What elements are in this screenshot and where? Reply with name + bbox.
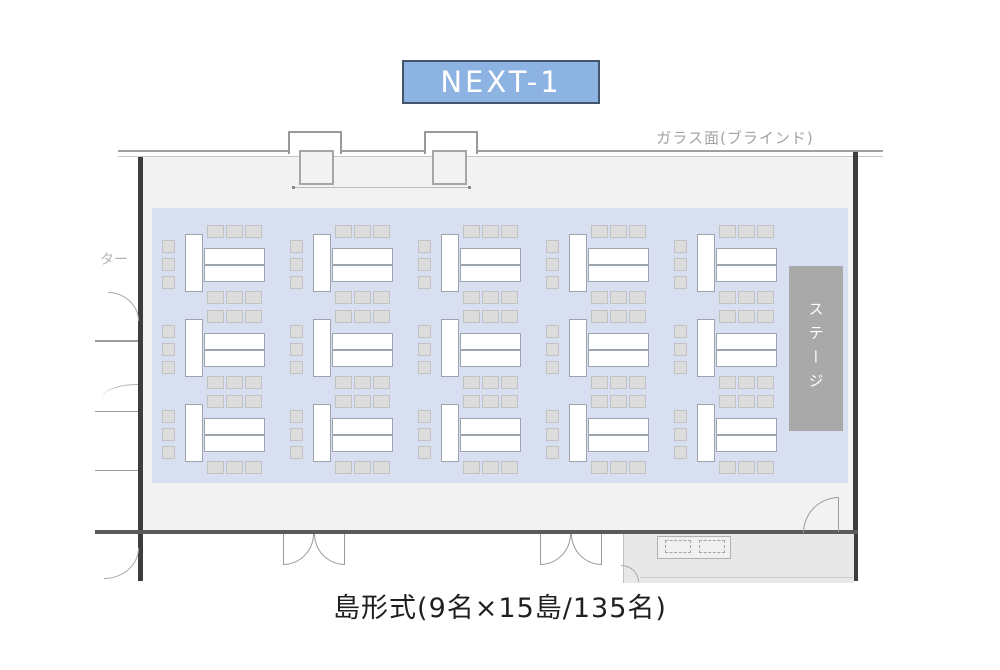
chair (207, 376, 224, 389)
sink-unit (657, 536, 731, 559)
chair (501, 291, 518, 304)
seating-island (674, 395, 777, 474)
chair (463, 461, 480, 474)
chair (418, 258, 431, 271)
table-horizontal (204, 248, 265, 265)
chair (482, 461, 499, 474)
chair (162, 325, 175, 338)
chair (373, 376, 390, 389)
pillar-base-1 (299, 150, 334, 185)
pillar-dot-left (292, 186, 295, 189)
chair (354, 376, 371, 389)
table-horizontal (332, 265, 393, 282)
chair (162, 446, 175, 459)
wall-top (118, 150, 883, 152)
chair (463, 291, 480, 304)
chair (501, 225, 518, 238)
table-horizontal (588, 248, 649, 265)
chair (546, 258, 559, 271)
sink-icon (665, 540, 691, 553)
chair (207, 310, 224, 323)
chair (482, 291, 499, 304)
chair (373, 225, 390, 238)
table-vertical (569, 404, 587, 462)
door-1-right-swing-arc (314, 534, 345, 565)
table-vertical (185, 404, 203, 462)
table-horizontal (588, 265, 649, 282)
chair (226, 376, 243, 389)
seating-island (546, 225, 649, 304)
chair (335, 376, 352, 389)
annex-line (640, 577, 853, 578)
chair (373, 310, 390, 323)
chair (463, 225, 480, 238)
table-horizontal (332, 435, 393, 452)
wall-right (853, 152, 858, 581)
chair (226, 461, 243, 474)
table-vertical (185, 319, 203, 377)
seating-island (674, 310, 777, 389)
table-vertical (697, 234, 715, 292)
chair (674, 361, 687, 374)
chair (546, 410, 559, 423)
chair (207, 225, 224, 238)
chair (245, 376, 262, 389)
chair (335, 291, 352, 304)
chair (546, 240, 559, 253)
table-horizontal (588, 435, 649, 452)
chair (354, 395, 371, 408)
chair (418, 361, 431, 374)
chair (373, 461, 390, 474)
chair (738, 310, 755, 323)
table-horizontal (332, 418, 393, 435)
table-vertical (441, 404, 459, 462)
chair (546, 276, 559, 289)
table-vertical (441, 234, 459, 292)
chair (674, 276, 687, 289)
chair (290, 240, 303, 253)
door-3-leaf (838, 497, 839, 532)
chair (418, 240, 431, 253)
table-horizontal (716, 418, 777, 435)
chair (610, 395, 627, 408)
chair (418, 325, 431, 338)
chair (335, 225, 352, 238)
chair (290, 276, 303, 289)
chair (245, 461, 262, 474)
table-vertical (569, 234, 587, 292)
chair (335, 395, 352, 408)
table-vertical (697, 319, 715, 377)
chair (629, 225, 646, 238)
chair (290, 343, 303, 356)
chair (610, 461, 627, 474)
table-horizontal (204, 435, 265, 452)
table-vertical (697, 404, 715, 462)
chair (226, 291, 243, 304)
chair (162, 240, 175, 253)
table-horizontal (588, 418, 649, 435)
seating-island (290, 395, 393, 474)
left-edge-label: ター (100, 249, 128, 269)
table-vertical (313, 319, 331, 377)
chair (591, 225, 608, 238)
chair (162, 410, 175, 423)
table-horizontal (460, 350, 521, 367)
chair (674, 258, 687, 271)
table-horizontal (716, 333, 777, 350)
chair (335, 461, 352, 474)
chair (738, 461, 755, 474)
chair (418, 276, 431, 289)
chair (757, 291, 774, 304)
chair (463, 310, 480, 323)
chair (162, 276, 175, 289)
chair (207, 395, 224, 408)
chair (162, 258, 175, 271)
wall-top-inner-line (118, 156, 883, 157)
chair (418, 446, 431, 459)
chair (674, 343, 687, 356)
door-2-left-swing-arc (540, 534, 571, 565)
chair (674, 410, 687, 423)
chair (418, 410, 431, 423)
door-1-left-swing-arc (283, 534, 314, 565)
wall-tick-2 (95, 411, 138, 412)
seating-island (418, 310, 521, 389)
chair (757, 461, 774, 474)
seating-island (162, 395, 265, 474)
table-horizontal (716, 435, 777, 452)
chair (546, 428, 559, 441)
chair (226, 225, 243, 238)
chair (591, 310, 608, 323)
chair (738, 395, 755, 408)
chair (162, 343, 175, 356)
chair (418, 428, 431, 441)
chair (418, 343, 431, 356)
chair (610, 376, 627, 389)
chair (335, 310, 352, 323)
chair (546, 361, 559, 374)
seating-island (290, 310, 393, 389)
seating-island (674, 225, 777, 304)
chair (610, 225, 627, 238)
left-door-swing-arc-3 (104, 548, 139, 579)
chair (591, 395, 608, 408)
chair (290, 410, 303, 423)
table-horizontal (460, 333, 521, 350)
chair (719, 225, 736, 238)
door-2-right-leaf (601, 534, 602, 564)
door-1-right-leaf (344, 534, 345, 564)
chair (738, 376, 755, 389)
chair (719, 291, 736, 304)
chair (674, 240, 687, 253)
stage-label: ステージ (806, 301, 827, 397)
stage: ステージ (789, 266, 843, 431)
chair (546, 343, 559, 356)
chair (354, 291, 371, 304)
table-vertical (569, 319, 587, 377)
chair (757, 376, 774, 389)
chair (245, 225, 262, 238)
table-horizontal (460, 435, 521, 452)
table-horizontal (716, 265, 777, 282)
chair (354, 225, 371, 238)
chair (373, 395, 390, 408)
chair (354, 461, 371, 474)
seating-island (418, 225, 521, 304)
seating-island (418, 395, 521, 474)
chair (610, 291, 627, 304)
layout-caption: 島形式(9名×15島/135名) (0, 586, 1000, 625)
chair (629, 310, 646, 323)
chair (546, 446, 559, 459)
chair (501, 395, 518, 408)
chair (591, 461, 608, 474)
glass-wall-label: ガラス面(ブラインド) (620, 127, 850, 148)
wall-tick-3 (95, 470, 138, 471)
chair (757, 225, 774, 238)
chair (501, 461, 518, 474)
table-horizontal (204, 418, 265, 435)
table-horizontal (332, 248, 393, 265)
left-door-swing-arc-1 (108, 292, 139, 321)
table-horizontal (204, 333, 265, 350)
chair (245, 395, 262, 408)
seating-area (152, 208, 848, 483)
seating-island (162, 225, 265, 304)
table-horizontal (332, 333, 393, 350)
chair (546, 325, 559, 338)
table-vertical (185, 234, 203, 292)
chair (757, 310, 774, 323)
chair (719, 376, 736, 389)
chair (719, 310, 736, 323)
chair (290, 258, 303, 271)
chair (591, 376, 608, 389)
pillar-connector-line (293, 187, 470, 188)
chair (354, 310, 371, 323)
chair (610, 310, 627, 323)
chair (290, 428, 303, 441)
pillar-dot-right (468, 186, 471, 189)
table-horizontal (460, 265, 521, 282)
chair (719, 395, 736, 408)
chair (207, 291, 224, 304)
sink-icon (699, 540, 725, 553)
table-vertical (313, 234, 331, 292)
chair (501, 376, 518, 389)
table-vertical (313, 404, 331, 462)
seating-island (162, 310, 265, 389)
chair (738, 225, 755, 238)
chair (674, 446, 687, 459)
chair (501, 310, 518, 323)
chair (162, 428, 175, 441)
chair (373, 291, 390, 304)
chair (674, 325, 687, 338)
chair (738, 291, 755, 304)
door-2-right-swing-arc (571, 534, 602, 565)
chair (719, 461, 736, 474)
room-title: NEXT-1 (440, 65, 561, 99)
chair (629, 461, 646, 474)
chair (245, 310, 262, 323)
chair (162, 361, 175, 374)
left-door-swing-arc-2 (102, 384, 138, 398)
table-horizontal (460, 418, 521, 435)
chair (757, 395, 774, 408)
pillar-base-2 (432, 150, 467, 185)
table-horizontal (716, 248, 777, 265)
table-vertical (441, 319, 459, 377)
chair (207, 461, 224, 474)
seating-island (290, 225, 393, 304)
table-horizontal (588, 333, 649, 350)
table-horizontal (716, 350, 777, 367)
table-horizontal (204, 265, 265, 282)
chair (482, 310, 499, 323)
table-horizontal (332, 350, 393, 367)
table-horizontal (204, 350, 265, 367)
chair (290, 446, 303, 459)
chair (482, 395, 499, 408)
chair (482, 225, 499, 238)
chair (245, 291, 262, 304)
chair (629, 376, 646, 389)
chair (290, 361, 303, 374)
chair (591, 291, 608, 304)
table-horizontal (588, 350, 649, 367)
wall-tick-1 (95, 340, 138, 342)
chair (674, 428, 687, 441)
chair (226, 395, 243, 408)
room-title-box: NEXT-1 (402, 60, 600, 104)
chair (463, 395, 480, 408)
chair (463, 376, 480, 389)
chair (629, 291, 646, 304)
chair (226, 310, 243, 323)
chair (290, 325, 303, 338)
seating-island (546, 310, 649, 389)
wall-left (138, 157, 143, 581)
seating-island (546, 395, 649, 474)
table-horizontal (460, 248, 521, 265)
chair (482, 376, 499, 389)
chair (629, 395, 646, 408)
